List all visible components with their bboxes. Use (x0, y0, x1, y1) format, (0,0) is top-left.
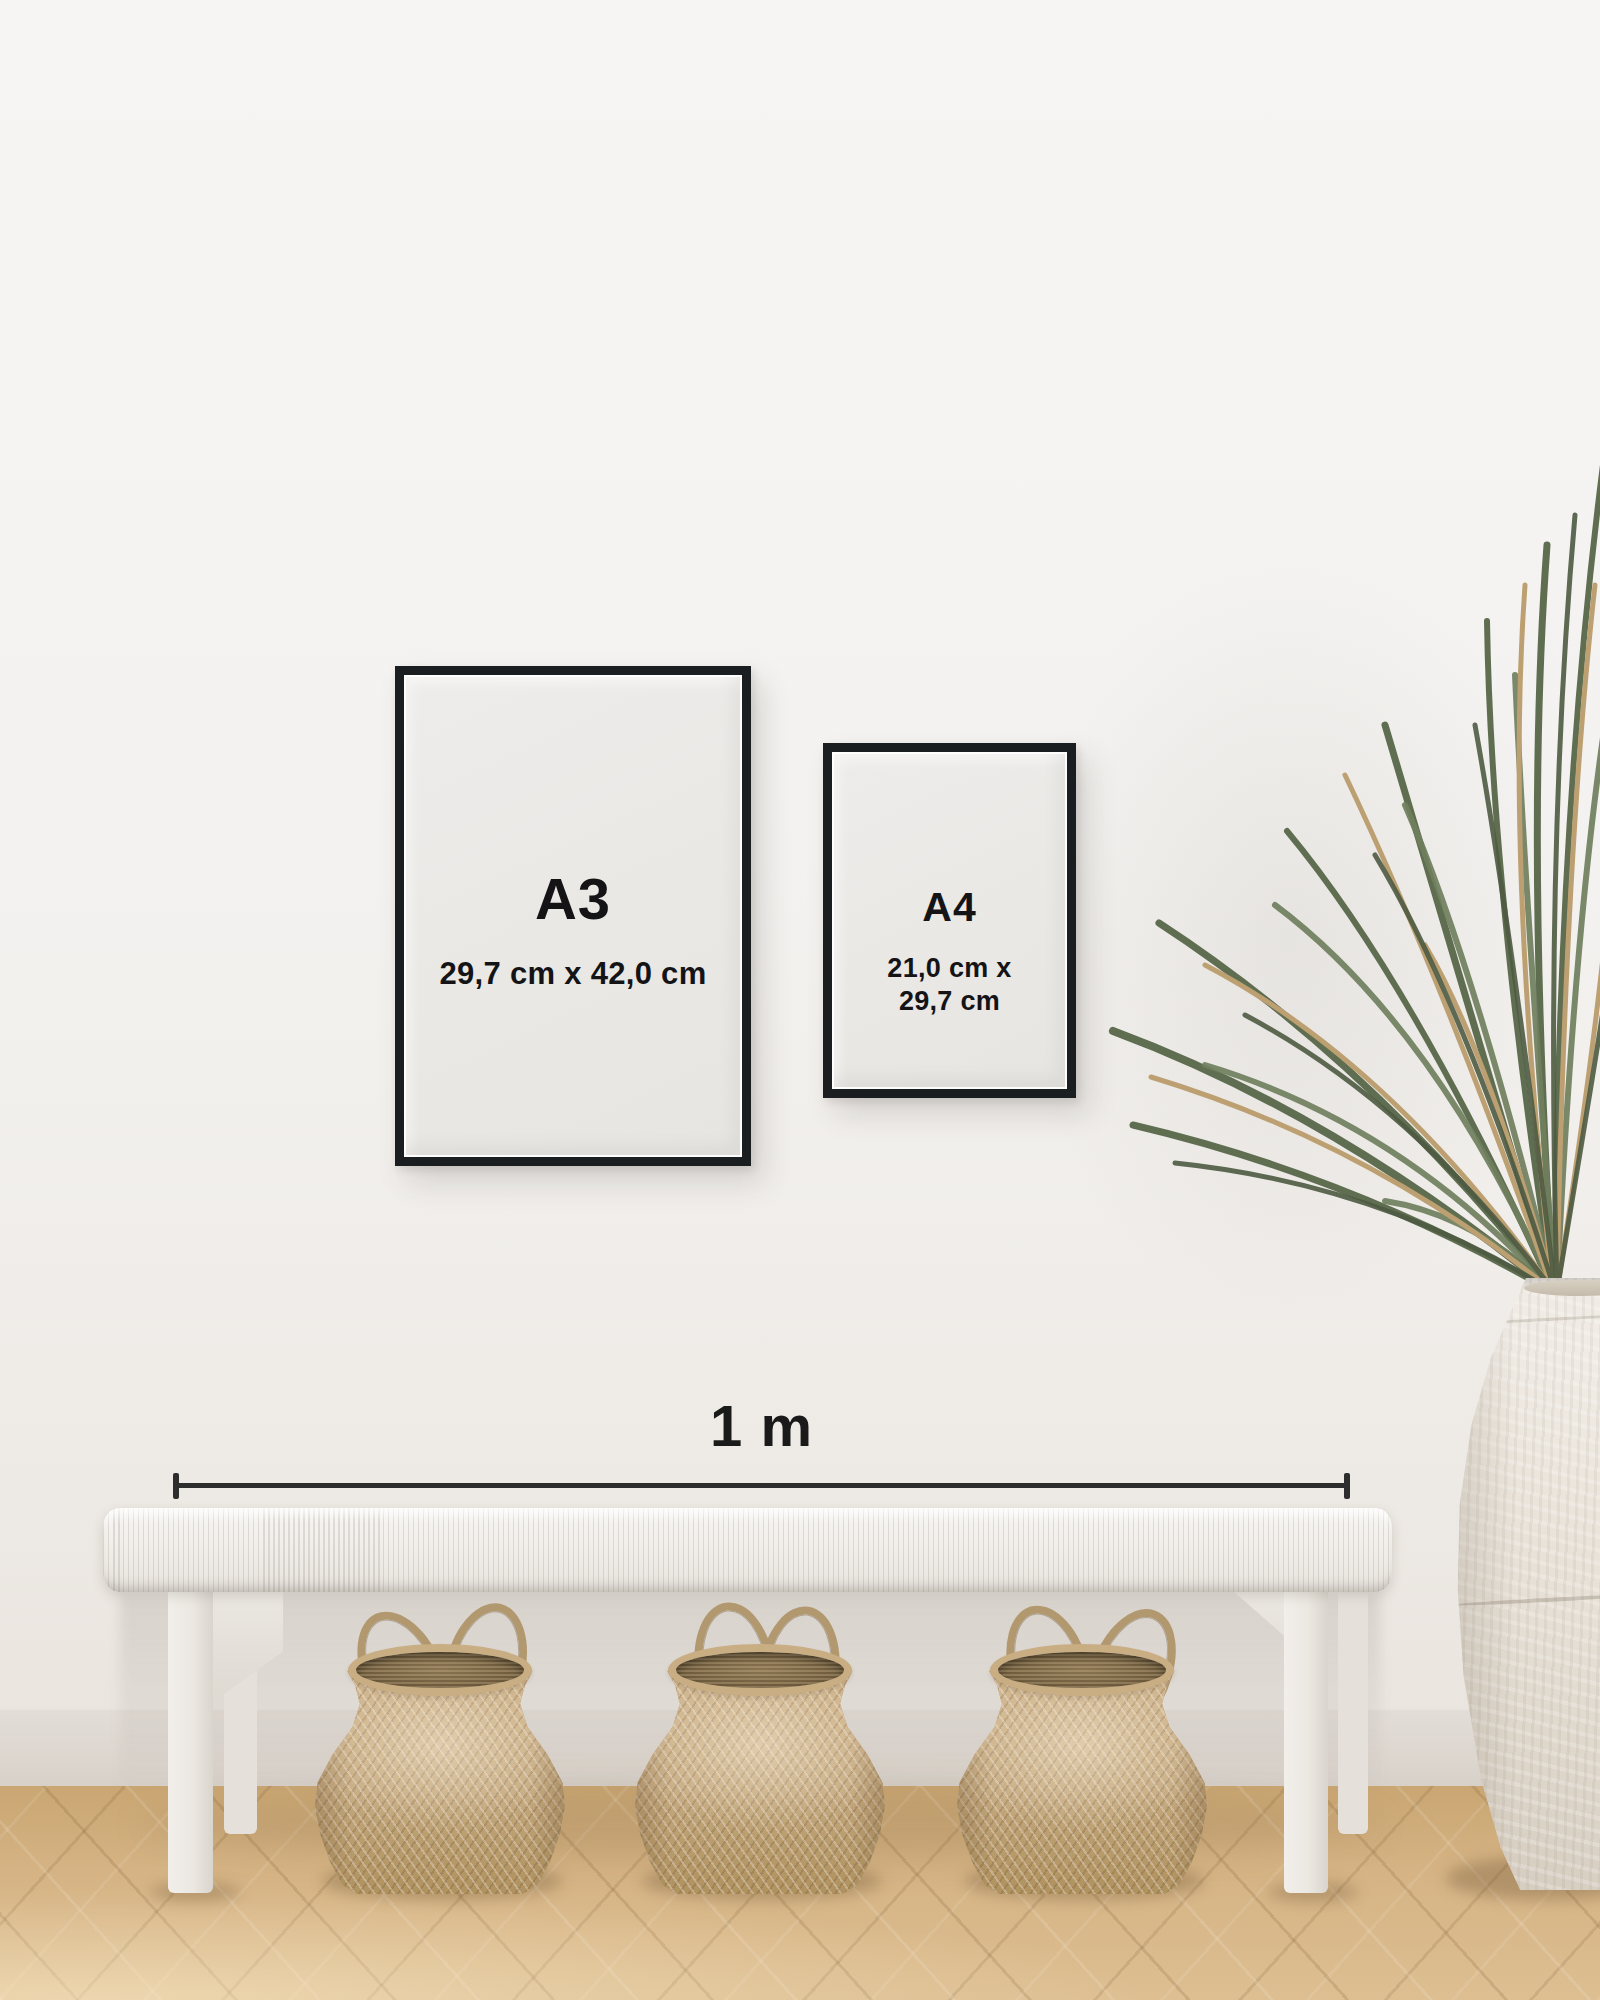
bench-leg-front-left (168, 1588, 213, 1893)
bench-leg-back-right (1338, 1588, 1368, 1834)
basket-middle (635, 1600, 885, 1894)
basket-body (635, 1662, 885, 1894)
scale-line (176, 1483, 1347, 1488)
scale-line-row (173, 1473, 1350, 1499)
basket-opening (998, 1652, 1166, 1688)
basket-body (315, 1662, 565, 1894)
a4-dimensions-line1: 21,0 cm x (860, 952, 1040, 984)
palm-fronds (1113, 465, 1600, 1293)
basket-opening (356, 1652, 524, 1688)
basket-opening (676, 1652, 844, 1688)
a4-dimensions-line2: 29,7 cm (860, 985, 1040, 1017)
vase-seam (1454, 1593, 1600, 1607)
poster-frame-a4: A4 21,0 cm x 29,7 cm (823, 743, 1076, 1098)
mockup-scene: 1 m A3 29,7 cm x 42,0 cm A4 21,0 cm x 29… (0, 0, 1600, 2000)
bench-leg-front-right (1284, 1588, 1328, 1893)
basket-body (957, 1662, 1207, 1894)
a3-size-label: A3 (439, 865, 706, 932)
a3-dimensions: 29,7 cm x 42,0 cm (439, 956, 706, 992)
poster-frame-a3: A3 29,7 cm x 42,0 cm (395, 666, 751, 1166)
bench-seat (103, 1508, 1392, 1592)
basket-right (957, 1600, 1207, 1894)
poster-a4-text: A4 21,0 cm x 29,7 cm (860, 884, 1040, 1017)
scale-tick-right (1344, 1473, 1350, 1499)
poster-a4: A4 21,0 cm x 29,7 cm (832, 752, 1067, 1089)
palm-plant (1055, 425, 1600, 1325)
poster-a3-text: A3 29,7 cm x 42,0 cm (439, 865, 706, 992)
basket-left (315, 1600, 565, 1894)
a4-dimensions: 21,0 cm x 29,7 cm (860, 952, 1040, 1017)
a4-size-label: A4 (860, 884, 1040, 931)
poster-a3: A3 29,7 cm x 42,0 cm (404, 675, 742, 1157)
vase-rim (1524, 1280, 1600, 1296)
scale-bar: 1 m (173, 1392, 1350, 1499)
scale-label: 1 m (173, 1392, 1350, 1459)
